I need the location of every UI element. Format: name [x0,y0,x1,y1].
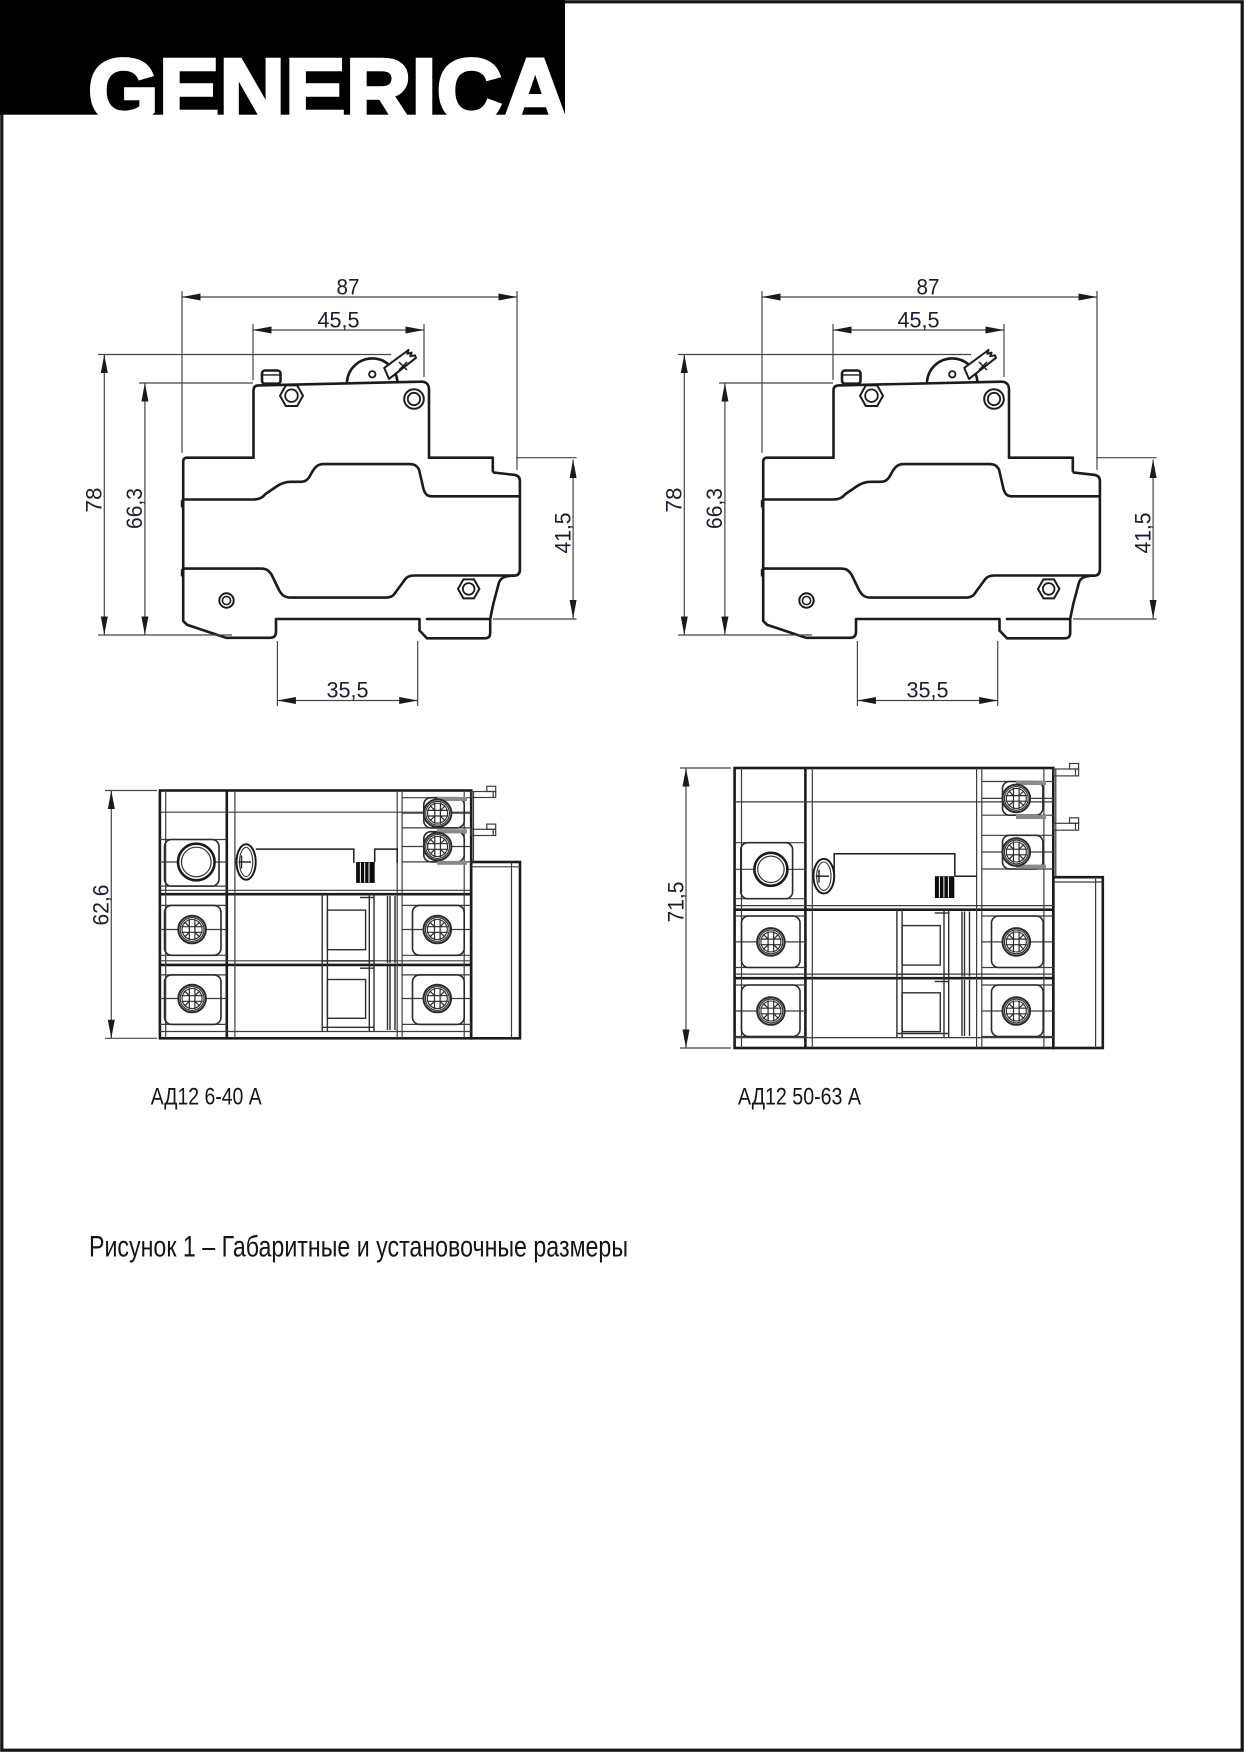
svg-text:Рисунок 1 – Габаритные и устан: Рисунок 1 – Габаритные и установочные ра… [89,1230,628,1263]
svg-text:87: 87 [337,274,360,299]
svg-text:35,5: 35,5 [327,677,369,702]
svg-text:GENERICA: GENERICA [88,41,568,141]
svg-text:71,5: 71,5 [663,882,688,923]
svg-text:АД12 6-40 А: АД12 6-40 А [151,1084,262,1111]
svg-text:45,5: 45,5 [318,307,360,332]
svg-text:62,6: 62,6 [89,885,114,926]
svg-text:78: 78 [82,488,107,513]
svg-text:АД12 50-63 А: АД12 50-63 А [738,1083,861,1110]
svg-text:66,3: 66,3 [122,488,147,529]
svg-text:41,5: 41,5 [550,513,575,554]
